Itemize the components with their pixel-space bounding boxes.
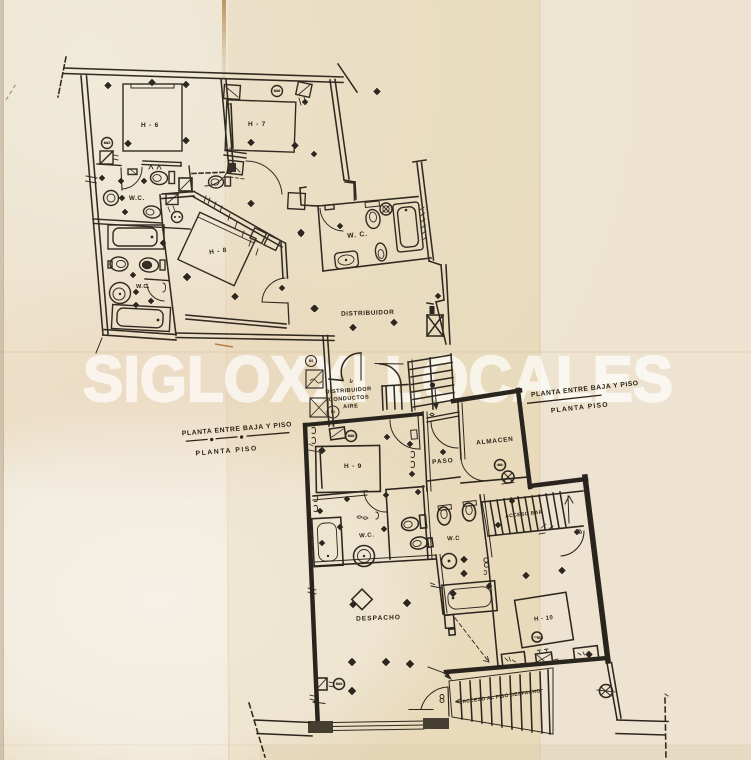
svg-text:H - 7: H - 7 [248,121,266,128]
svg-text:W.C.: W.C. [129,195,145,202]
svg-text:W.C.: W.C. [136,284,150,290]
svg-text:H - 6: H - 6 [141,122,159,129]
svg-text:H - 9: H - 9 [344,463,362,470]
svg-text:M17: M17 [104,141,110,145]
svg-text:W.C.: W.C. [359,532,375,539]
svg-text:M2: M2 [498,463,503,467]
svg-text:M1: M1 [331,410,336,414]
svg-text:M14: M14 [336,682,342,686]
svg-text:W.C: W.C [447,536,461,543]
svg-text:M16: M16 [274,89,280,93]
svg-text:M4: M4 [309,359,314,363]
svg-text:M15: M15 [348,434,354,438]
svg-text:AIRE: AIRE [343,403,359,410]
svg-text:M13: M13 [537,636,543,640]
